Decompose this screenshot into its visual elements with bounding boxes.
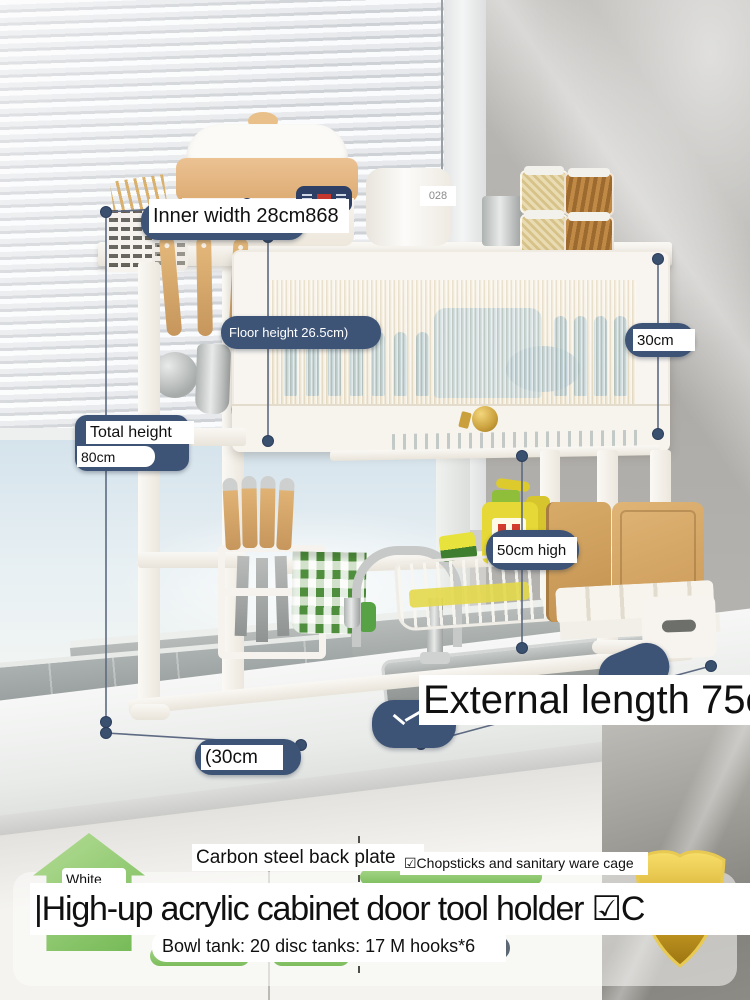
feature-left-text: Carbon steel back plate xyxy=(196,847,396,869)
product-title: |High-up acrylic cabinet door tool holde… xyxy=(30,883,750,935)
product-title-text: |High-up acrylic cabinet door tool holde… xyxy=(34,889,644,929)
total-height-value-text: 80cm xyxy=(81,449,115,465)
product-photo-scene: 028 xyxy=(0,0,750,1000)
pill-tick-mark xyxy=(393,714,406,725)
door-height-text: 30cm xyxy=(637,332,674,349)
floor-height-label: Floor height 26.5cm) xyxy=(221,316,381,349)
feature-right-label: ☑Chopsticks and sanitary ware cage xyxy=(400,852,648,875)
tier-height-text: 50cm high xyxy=(497,542,566,559)
feature-left-label: Carbon steel back plate xyxy=(192,844,424,871)
floor-height-text: Floor height 26.5cm) xyxy=(229,325,348,340)
tier-height-label: 50cm high xyxy=(493,537,577,563)
feature-right-text: ☑Chopsticks and sanitary ware cage xyxy=(404,855,634,872)
base-depth-text: (30cm xyxy=(205,747,258,769)
door-height-label: 30cm xyxy=(633,329,695,351)
total-height-title-text: Total height xyxy=(90,424,172,442)
total-height-value: 80cm xyxy=(77,446,155,467)
specs-text: Bowl tank: 20 disc tanks: 17 M hooks*6 xyxy=(162,936,475,957)
inner-width-label: Inner width 28cm868 xyxy=(149,199,349,233)
external-length-text: External length 75cm xyxy=(423,678,750,723)
base-depth-label: (30cm xyxy=(201,745,283,770)
external-length-label: External length 75cm xyxy=(419,675,750,725)
total-height-title: Total height xyxy=(86,421,194,444)
specs-label: Bowl tank: 20 disc tanks: 17 M hooks*6 xyxy=(152,931,506,962)
inner-width-text: Inner width 28cm868 xyxy=(153,205,339,228)
